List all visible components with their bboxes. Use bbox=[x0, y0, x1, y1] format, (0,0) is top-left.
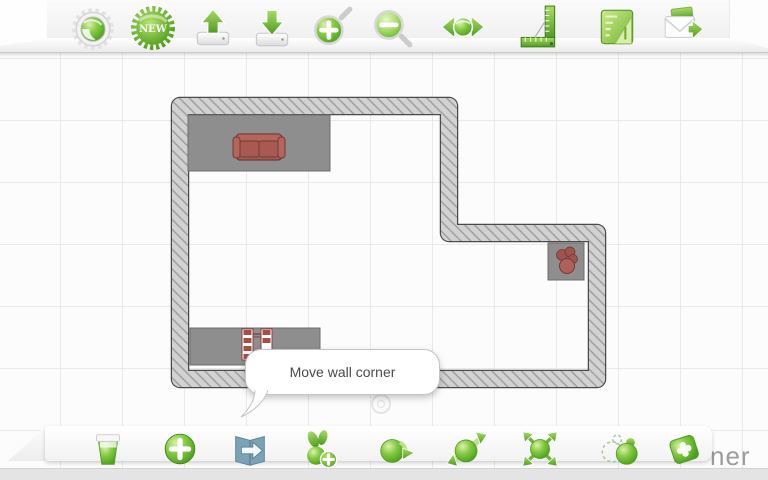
share-icon[interactable] bbox=[660, 4, 706, 50]
toolbar-shadow bbox=[0, 53, 768, 57]
tooltip-text: Move wall corner bbox=[290, 364, 396, 380]
download-icon[interactable] bbox=[249, 4, 295, 50]
copy-icon[interactable] bbox=[599, 428, 641, 470]
scale-icon[interactable] bbox=[519, 428, 561, 470]
pan-icon[interactable] bbox=[440, 4, 486, 50]
export-icon[interactable] bbox=[229, 428, 271, 470]
zoom-out-icon[interactable] bbox=[369, 4, 415, 50]
tooltip-tail bbox=[236, 388, 280, 420]
ruler-icon[interactable] bbox=[517, 4, 563, 50]
wall-corner-handle[interactable] bbox=[372, 395, 390, 413]
svg-text:NEW: NEW bbox=[139, 24, 168, 35]
flip-icon[interactable] bbox=[446, 428, 488, 470]
app-window: ner Move wall corner NEW bbox=[0, 0, 768, 480]
top-toolbar: NEW bbox=[0, 0, 768, 53]
bottom-toolbar-left-wing bbox=[8, 426, 46, 461]
add-icon[interactable] bbox=[159, 428, 201, 470]
delete-icon[interactable] bbox=[87, 428, 129, 470]
new-badge[interactable]: NEW bbox=[130, 4, 176, 50]
plan-document-icon[interactable] bbox=[594, 4, 640, 50]
zoom-in-icon[interactable] bbox=[309, 4, 355, 50]
sofa[interactable] bbox=[233, 134, 285, 160]
settings-icon[interactable] bbox=[70, 4, 116, 50]
add-furniture-icon[interactable] bbox=[299, 428, 341, 470]
rotate-icon[interactable] bbox=[375, 428, 417, 470]
texture-icon[interactable] bbox=[663, 428, 705, 470]
floor-plan[interactable] bbox=[0, 0, 768, 480]
upload-icon[interactable] bbox=[190, 4, 236, 50]
